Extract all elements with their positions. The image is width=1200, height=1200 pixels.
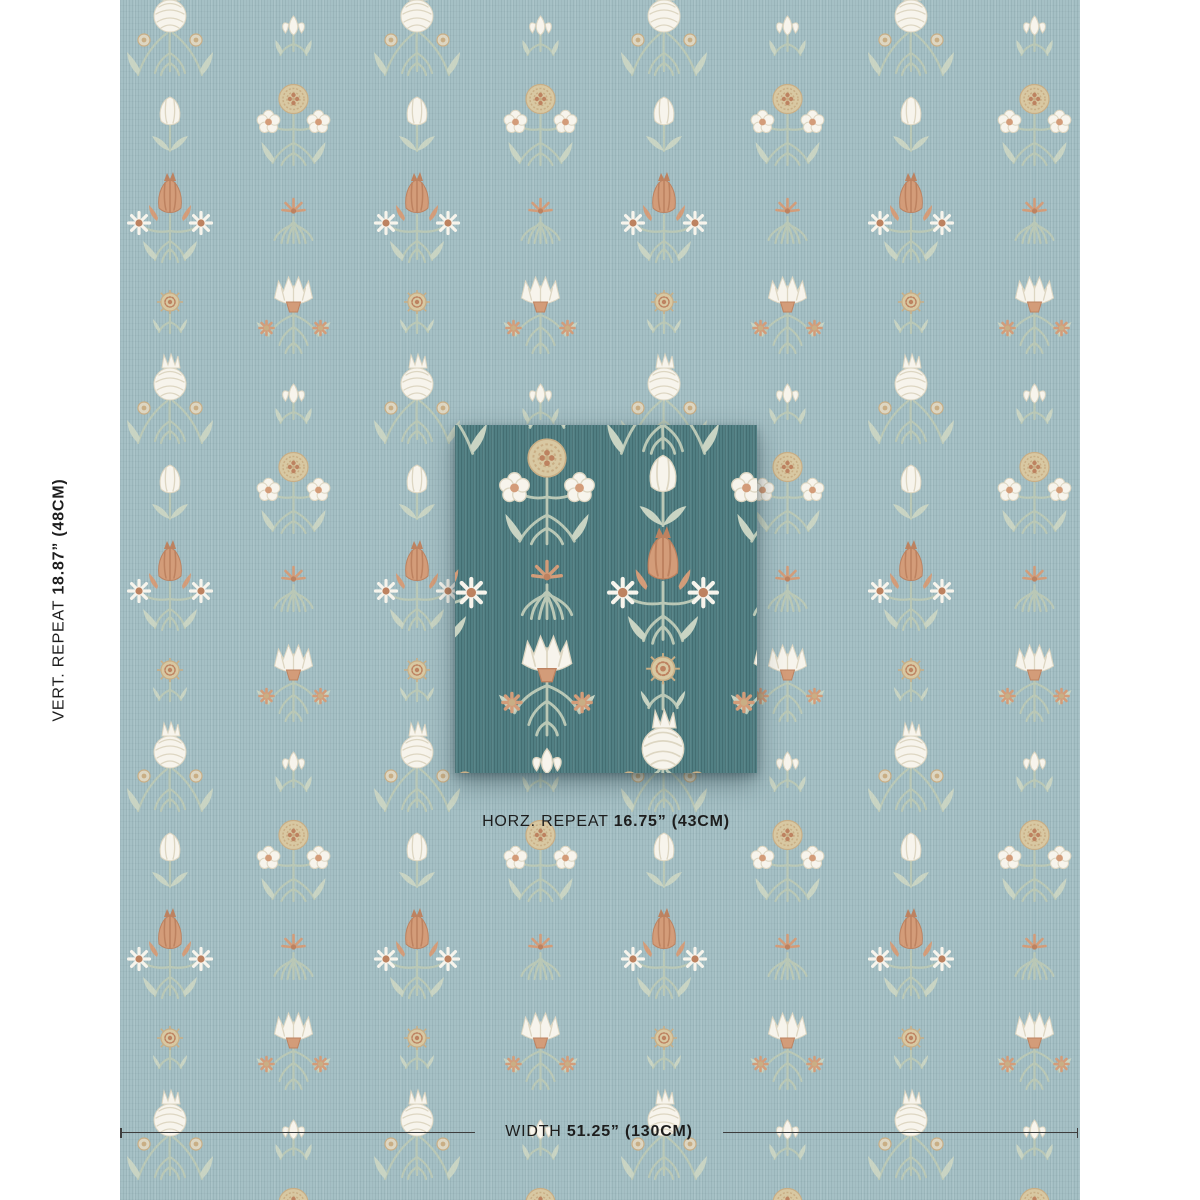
motif-pomegranate — [621, 0, 707, 75]
motif-poppy-daisies — [129, 540, 212, 630]
motif-pomegranate — [868, 722, 954, 811]
motif-tulip-white — [893, 465, 929, 519]
motif-tulip-sprig — [769, 752, 805, 791]
motif-dandelion-roses — [257, 453, 330, 534]
motif-dandelion-roses — [751, 821, 824, 902]
motif-iris-sprig — [754, 561, 757, 618]
motif-tulip-sprig — [522, 16, 558, 55]
motif-carnation — [751, 277, 825, 353]
motif-tulip-sprig — [275, 752, 311, 791]
motif-tulip-white — [893, 833, 929, 887]
motif-marigold — [894, 1026, 928, 1069]
swatch-pattern — [455, 425, 757, 773]
left-margin: VERT. REPEAT 18.87” (48CM) — [0, 0, 120, 1200]
motif-poppy-daisies — [376, 908, 459, 998]
motif-poppy-daisies — [870, 908, 953, 998]
motif-carnation — [257, 645, 331, 721]
motif-tulip-sprig — [522, 384, 558, 423]
motif-tulip-white — [640, 455, 687, 525]
motif-carnation — [257, 1013, 331, 1089]
motif-poppy-daisies — [870, 172, 953, 262]
motif-dandelion-roses — [504, 821, 577, 902]
width-line-left — [120, 1132, 475, 1133]
motif-pomegranate — [455, 425, 487, 453]
motif-carnation — [504, 277, 578, 353]
motif-carnation — [751, 645, 825, 721]
repeat-swatch-overlay — [455, 425, 757, 773]
motif-marigold — [894, 658, 928, 701]
horizontal-repeat-value: 16.75” (43CM) — [614, 813, 730, 830]
motif-tulip-white — [152, 833, 188, 887]
motif-tulip-sprig — [523, 425, 570, 427]
motif-tulip-sprig — [275, 384, 311, 423]
motif-marigold — [153, 658, 187, 701]
motif-pomegranate — [374, 354, 460, 443]
motif-pomegranate — [607, 425, 719, 453]
vertical-repeat-prefix: VERT. REPEAT — [51, 600, 68, 722]
motif-marigold — [641, 653, 685, 709]
motif-tulip-sprig — [275, 16, 311, 55]
motif-poppy-daisies — [129, 908, 212, 998]
motif-carnation — [998, 1013, 1072, 1089]
motif-tulip-sprig — [523, 749, 570, 773]
motif-tulip-white — [646, 833, 682, 887]
motif-carnation — [731, 636, 757, 735]
motif-tulip-white — [399, 465, 435, 519]
motif-dandelion-roses — [751, 1189, 824, 1200]
fabric-swatch-page: HORZ. REPEAT 16.75” (43CM) WIDTH 51.25” … — [0, 0, 1200, 1200]
motif-poppy-daisies — [376, 172, 459, 262]
motif-poppy-daisies — [129, 172, 212, 262]
motif-iris-sprig — [769, 199, 807, 243]
motif-marigold — [400, 658, 434, 701]
motif-tulip-white — [399, 97, 435, 151]
motif-tulip-white — [152, 465, 188, 519]
motif-marigold — [153, 1026, 187, 1069]
motif-dandelion-roses — [500, 439, 595, 544]
motif-iris-sprig — [1016, 199, 1054, 243]
motif-carnation — [504, 1013, 578, 1089]
horizontal-repeat-label: HORZ. REPEAT 16.75” (43CM) — [482, 813, 730, 831]
motif-iris-sprig — [522, 935, 560, 979]
motif-poppy-daisies — [623, 908, 706, 998]
motif-iris-sprig — [769, 935, 807, 979]
motif-iris-sprig — [769, 567, 807, 611]
motif-pomegranate — [374, 0, 460, 75]
motif-iris-sprig — [275, 567, 313, 611]
motif-dandelion-roses — [751, 85, 824, 166]
motif-pomegranate — [127, 722, 213, 811]
width-line-right — [723, 1132, 1078, 1133]
motif-tulip-sprig — [1016, 752, 1052, 791]
width-value: 51.25” (130CM) — [567, 1123, 693, 1140]
motif-tulip-sprig — [1016, 16, 1052, 55]
motif-iris-sprig — [1016, 567, 1054, 611]
horizontal-repeat-prefix: HORZ. REPEAT — [482, 813, 608, 830]
width-prefix: WIDTH — [505, 1123, 561, 1140]
vertical-repeat-label: VERT. REPEAT 18.87” (48CM) — [51, 478, 69, 721]
motif-tulip-sprig — [1016, 384, 1052, 423]
motif-marigold — [400, 290, 434, 333]
motif-poppy-daisies — [376, 540, 459, 630]
motif-carnation — [998, 277, 1072, 353]
motif-iris-sprig — [522, 199, 560, 243]
motif-tulip-white — [399, 833, 435, 887]
motif-dandelion-roses — [257, 821, 330, 902]
motif-iris-sprig — [522, 561, 571, 618]
motif-dandelion-roses — [998, 85, 1071, 166]
motif-dandelion-roses — [257, 85, 330, 166]
motif-tulip-sprig — [755, 749, 757, 773]
vertical-repeat-value: 18.87” (48CM) — [51, 478, 68, 594]
motif-tulip-white — [152, 97, 188, 151]
motif-pomegranate — [607, 710, 719, 773]
motif-pomegranate — [127, 0, 213, 75]
motif-iris-sprig — [1016, 935, 1054, 979]
motif-dandelion-roses — [504, 1189, 577, 1200]
motif-tulip-white — [646, 97, 682, 151]
motif-pomegranate — [455, 710, 487, 773]
motif-marigold — [400, 1026, 434, 1069]
motif-dandelion-roses — [998, 821, 1071, 902]
motif-iris-sprig — [275, 935, 313, 979]
width-annotation: WIDTH 51.25” (130CM) — [120, 1123, 1078, 1141]
motif-dandelion-roses — [998, 1189, 1071, 1200]
motif-marigold — [647, 1026, 681, 1069]
motif-carnation — [751, 1013, 825, 1089]
motif-dandelion-roses — [732, 439, 757, 544]
motif-pomegranate — [868, 354, 954, 443]
motif-pomegranate — [127, 354, 213, 443]
motif-marigold — [647, 290, 681, 333]
motif-carnation — [998, 645, 1072, 721]
motif-tulip-white — [893, 97, 929, 151]
motif-dandelion-roses — [751, 453, 824, 534]
motif-pomegranate — [374, 722, 460, 811]
motif-tulip-sprig — [769, 16, 805, 55]
motif-tulip-sprig — [755, 425, 757, 427]
fabric-background: HORZ. REPEAT 16.75” (43CM) WIDTH 51.25” … — [120, 0, 1080, 1200]
motif-dandelion-roses — [998, 453, 1071, 534]
motif-carnation — [499, 636, 595, 735]
motif-dandelion-roses — [504, 85, 577, 166]
motif-tulip-sprig — [769, 384, 805, 423]
motif-pomegranate — [868, 0, 954, 75]
motif-marigold — [894, 290, 928, 333]
motif-poppy-daisies — [609, 526, 717, 643]
width-label: WIDTH 51.25” (130CM) — [505, 1123, 693, 1141]
motif-poppy-daisies — [455, 526, 485, 643]
motif-marigold — [153, 290, 187, 333]
motif-poppy-daisies — [623, 172, 706, 262]
motif-carnation — [257, 277, 331, 353]
motif-iris-sprig — [275, 199, 313, 243]
motif-poppy-daisies — [870, 540, 953, 630]
motif-dandelion-roses — [257, 1189, 330, 1200]
